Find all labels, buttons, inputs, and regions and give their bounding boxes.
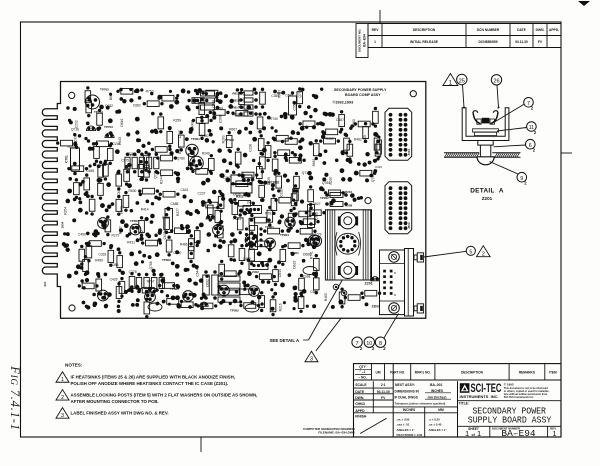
- svg-text:SEE DETAIL A: SEE DETAIL A: [270, 338, 301, 343]
- svg-text:– NO.: – NO.: [358, 375, 366, 379]
- svg-text:TP301: TP301: [191, 137, 200, 141]
- svg-text:IF HEATSINKS (ITEMS 25 & 26) A: IF HEATSINKS (ITEMS 25 & 26) ARE SUPPLIE…: [71, 375, 236, 380]
- svg-text:R768: R768: [128, 152, 136, 156]
- svg-text:C399: C399: [74, 134, 78, 142]
- svg-text:Tolerances (unless otherwise s: Tolerances (unless otherwise specified): [395, 402, 446, 406]
- svg-text:⌜ –1: ⌜ –1: [360, 370, 366, 374]
- svg-text:1: 1: [465, 429, 469, 438]
- svg-text:93.11.30: 93.11.30: [377, 390, 390, 394]
- svg-text:REMARKS: REMARKS: [519, 371, 535, 375]
- svg-text:DATE: DATE: [355, 390, 365, 394]
- svg-text:ASSEMBLE LOCKING POSTS (ITEM 5: ASSEMBLE LOCKING POSTS (ITEM 5) WITH 2 F…: [71, 392, 258, 397]
- svg-text:UM: UM: [376, 371, 381, 375]
- svg-text:R667: R667: [229, 128, 237, 132]
- svg-text:R499: R499: [95, 259, 103, 263]
- svg-text:R741: R741: [309, 251, 313, 259]
- svg-text:Z402: Z402: [252, 270, 259, 274]
- svg-text:TP502: TP502: [230, 309, 239, 313]
- svg-text:J303: J303: [372, 305, 379, 309]
- svg-text:9: 9: [520, 176, 523, 182]
- svg-text:DESCRIPTION: DESCRIPTION: [461, 371, 483, 375]
- svg-text:NEXT ASSY:: NEXT ASSY:: [395, 383, 415, 387]
- svg-text:C338: C338: [248, 144, 252, 152]
- svg-text:CHKD: CHKD: [355, 402, 365, 406]
- svg-text:APPD.: APPD.: [549, 28, 559, 32]
- svg-text:C333: C333: [98, 253, 106, 257]
- svg-text:5: 5: [469, 250, 472, 256]
- svg-text:C237: C237: [198, 191, 206, 195]
- svg-text:2: 2: [61, 395, 64, 401]
- svg-text:1: 1: [552, 429, 556, 438]
- svg-text:R681: R681: [312, 158, 316, 166]
- svg-text:C498: C498: [212, 100, 216, 108]
- svg-text:C680: C680: [310, 290, 318, 294]
- svg-text:BA–001: BA–001: [430, 383, 443, 387]
- svg-text:C355: C355: [271, 94, 279, 98]
- svg-text:TP904: TP904: [280, 233, 289, 237]
- svg-text:FRACTIONS ± 1/32: FRACTIONS ± 1/32: [397, 433, 423, 437]
- svg-text:SECONDARY POWER SUPPLY: SECONDARY POWER SUPPLY: [334, 88, 387, 92]
- svg-text:INSTRUMENTS INC.: INSTRUMENTS INC.: [460, 394, 499, 399]
- svg-text:D656: D656: [233, 193, 241, 197]
- svg-text:3: 3: [61, 413, 64, 419]
- svg-text:BA–E94: BA–E94: [501, 428, 536, 439]
- svg-text:C275: C275: [121, 158, 129, 162]
- svg-text:J604: J604: [61, 221, 65, 228]
- svg-text:DATE: DATE: [517, 28, 527, 32]
- svg-text:2: 2: [482, 252, 485, 258]
- svg-text:25: 25: [459, 78, 465, 84]
- svg-text:R767: R767: [147, 280, 155, 284]
- svg-text:AFTER MOUNTING CONNECTOR TO PC: AFTER MOUNTING CONNECTOR TO PCB.: [71, 399, 159, 404]
- svg-text:C701: C701: [65, 155, 69, 163]
- svg-text:DIMENSIONS IN: DIMENSIONS IN: [395, 389, 420, 393]
- svg-text:DCN858/859: DCN858/859: [478, 40, 497, 44]
- svg-text:DWN.: DWN.: [536, 28, 545, 32]
- svg-text:DETAIL A: DETAIL A: [470, 188, 504, 195]
- svg-text:D682: D682: [105, 104, 113, 108]
- svg-text:6: 6: [529, 143, 532, 149]
- svg-text:C644: C644: [196, 269, 200, 277]
- svg-text:FILENAME: BA–E94.DWG: FILENAME: BA–E94.DWG: [318, 431, 355, 435]
- svg-text:C617: C617: [117, 187, 121, 195]
- svg-text:NOTES:: NOTES:: [65, 363, 83, 368]
- svg-text:SCI-TEC Instruments Inc.: SCI-TEC Instruments Inc.: [504, 396, 534, 399]
- svg-text:R465: R465: [324, 293, 328, 301]
- svg-text:DOCUMENT NO.: DOCUMENT NO.: [358, 29, 362, 53]
- svg-text:TP702: TP702: [100, 88, 109, 92]
- svg-text:R493: R493: [326, 137, 334, 141]
- svg-text:R263: R263: [222, 135, 226, 143]
- svg-text:POLISH OFF ANODIZE WHERE HEATS: POLISH OFF ANODIZE WHERE HEATSINKS CONTA…: [71, 381, 229, 386]
- svg-text:R208: R208: [345, 204, 353, 208]
- svg-text:Z201: Z201: [365, 281, 373, 285]
- svg-text:PART NO.: PART NO.: [390, 371, 405, 375]
- svg-text:QTY: QTY: [359, 365, 366, 369]
- svg-text:C450: C450: [78, 232, 86, 236]
- svg-text:D646: D646: [120, 119, 124, 127]
- svg-text:E04: E04: [43, 281, 47, 286]
- svg-text:R472: R472: [118, 226, 122, 234]
- svg-text:1: 1: [374, 40, 376, 44]
- svg-text:2:1: 2:1: [381, 383, 386, 387]
- svg-text:C682: C682: [133, 103, 141, 107]
- svg-text:DCN NUMBER: DCN NUMBER: [477, 28, 500, 32]
- svg-text:C426: C426: [110, 277, 118, 281]
- svg-text:R791: R791: [265, 212, 273, 216]
- svg-text:Q779: Q779: [313, 233, 321, 237]
- svg-text:.xx ± .030: .xx ± .030: [397, 417, 410, 421]
- svg-text:.xx ± 0.40: .xx ± 0.40: [429, 423, 442, 427]
- svg-text:R216: R216: [278, 303, 282, 311]
- svg-text:.xxx ± .01: .xxx ± .01: [397, 423, 410, 427]
- svg-text:D697: D697: [109, 92, 113, 100]
- svg-text:J302: J302: [407, 222, 411, 229]
- svg-text:R244: R244: [160, 176, 164, 184]
- svg-text:TP603: TP603: [162, 258, 171, 262]
- svg-text:8: 8: [379, 341, 382, 347]
- svg-text:C688: C688: [170, 202, 178, 206]
- svg-text:INITIAL RELEASE: INITIAL RELEASE: [410, 40, 439, 44]
- svg-text:R440: R440: [201, 134, 209, 138]
- svg-text:C304: C304: [375, 165, 382, 169]
- svg-text:Z201: Z201: [482, 196, 493, 201]
- svg-text:Q716: Q716: [71, 128, 79, 132]
- svg-text:7: 7: [356, 341, 359, 347]
- svg-text:R431: R431: [127, 240, 135, 244]
- svg-text:J301: J301: [407, 149, 411, 156]
- svg-text:FIG 7.4.1-1: FIG 7.4.1-1: [8, 365, 22, 430]
- svg-text:R486: R486: [180, 243, 188, 247]
- svg-text:ANGLES ± 1°: ANGLES ± 1°: [429, 428, 448, 432]
- svg-text:IF DUAL DWGS: IF DUAL DWGS: [395, 395, 418, 399]
- svg-text:C641: C641: [181, 188, 189, 192]
- svg-text:DESCRIPTION: DESCRIPTION: [413, 28, 436, 32]
- svg-text:TP703: TP703: [104, 125, 113, 129]
- svg-text:R753: R753: [146, 90, 154, 94]
- svg-text:R789: R789: [178, 146, 182, 154]
- svg-text:REV: REV: [372, 28, 380, 32]
- svg-text:R297: R297: [329, 176, 333, 184]
- svg-text:INCHES: INCHES: [431, 389, 443, 393]
- svg-text:C326: C326: [280, 189, 284, 197]
- svg-text:TITLE:: TITLE:: [459, 401, 470, 405]
- svg-text:DWN.: DWN.: [355, 396, 364, 400]
- svg-text:.x ± 0.25: .x ± 0.25: [429, 417, 441, 421]
- svg-text:R249: R249: [202, 152, 210, 156]
- svg-text:BA–E94: BA–E94: [363, 34, 367, 47]
- svg-text:BOARD COMP ASSY: BOARD COMP ASSY: [345, 93, 381, 97]
- svg-text:C692: C692: [285, 94, 293, 98]
- svg-text:93.11.30: 93.11.30: [515, 40, 528, 44]
- svg-text:R462: R462: [354, 138, 362, 142]
- svg-text:C644: C644: [278, 269, 282, 277]
- svg-text:Q768: Q768: [149, 261, 153, 269]
- svg-text:R254: R254: [63, 207, 67, 215]
- svg-text:D627: D627: [313, 202, 321, 206]
- svg-text:FV: FV: [381, 396, 386, 400]
- svg-text:©1992,1993: ©1992,1993: [333, 101, 354, 105]
- svg-text:SUPPLY BOARD ASSY: SUPPLY BOARD ASSY: [468, 415, 552, 426]
- svg-text:1: 1: [477, 429, 481, 438]
- svg-text:D620: D620: [267, 177, 271, 185]
- svg-text:7: 7: [527, 101, 530, 107]
- svg-text:FINISH: FINISH: [355, 414, 367, 418]
- svg-text:R277: R277: [176, 208, 180, 216]
- svg-text:ITEM: ITEM: [549, 371, 557, 375]
- svg-text:C352: C352: [293, 102, 297, 110]
- svg-text:C487: C487: [336, 118, 344, 122]
- svg-text:C660: C660: [363, 135, 367, 143]
- svg-text:APPD: APPD: [355, 409, 365, 413]
- svg-text:C632: C632: [163, 231, 167, 239]
- svg-text:C692: C692: [205, 279, 209, 287]
- svg-text:Q740: Q740: [252, 287, 256, 295]
- svg-text:© 1993: © 1993: [504, 383, 514, 387]
- svg-text:D618: D618: [293, 261, 297, 269]
- svg-text:C266: C266: [219, 115, 223, 123]
- svg-text:SCALE: SCALE: [355, 383, 367, 387]
- svg-text:1: 1: [449, 79, 453, 86]
- svg-text:26: 26: [493, 79, 499, 85]
- svg-text:MFR's NO.: MFR's NO.: [415, 371, 431, 375]
- svg-text:R630: R630: [129, 189, 137, 193]
- svg-text:R817: R817: [232, 106, 240, 110]
- svg-text:C655: C655: [86, 169, 94, 173]
- svg-text:R210: R210: [345, 190, 353, 194]
- svg-text:INCHES: INCHES: [403, 408, 416, 412]
- svg-text:R414: R414: [141, 207, 149, 211]
- svg-text:R270: R270: [120, 206, 124, 214]
- svg-text:1: 1: [61, 377, 64, 383]
- svg-text:TP202: TP202: [320, 196, 329, 200]
- svg-text:ANGLES ± 1°: ANGLES ± 1°: [397, 428, 416, 432]
- svg-text:Q780: Q780: [177, 157, 185, 161]
- svg-text:R740: R740: [270, 117, 278, 121]
- svg-text:TP607: TP607: [130, 219, 139, 223]
- svg-text:3: 3: [310, 357, 313, 363]
- svg-text:Q746: Q746: [371, 174, 375, 182]
- svg-text:R445: R445: [118, 137, 122, 145]
- svg-text:C396: C396: [111, 263, 119, 267]
- svg-text:LABEL FINISHED ASSY WITH DWG N: LABEL FINISHED ASSY WITH DWG NO. & REV.: [71, 410, 169, 415]
- svg-text:MM: MM: [438, 408, 444, 412]
- svg-text:R259: R259: [173, 118, 181, 122]
- svg-text:mm (Inches): mm (Inches): [428, 395, 447, 399]
